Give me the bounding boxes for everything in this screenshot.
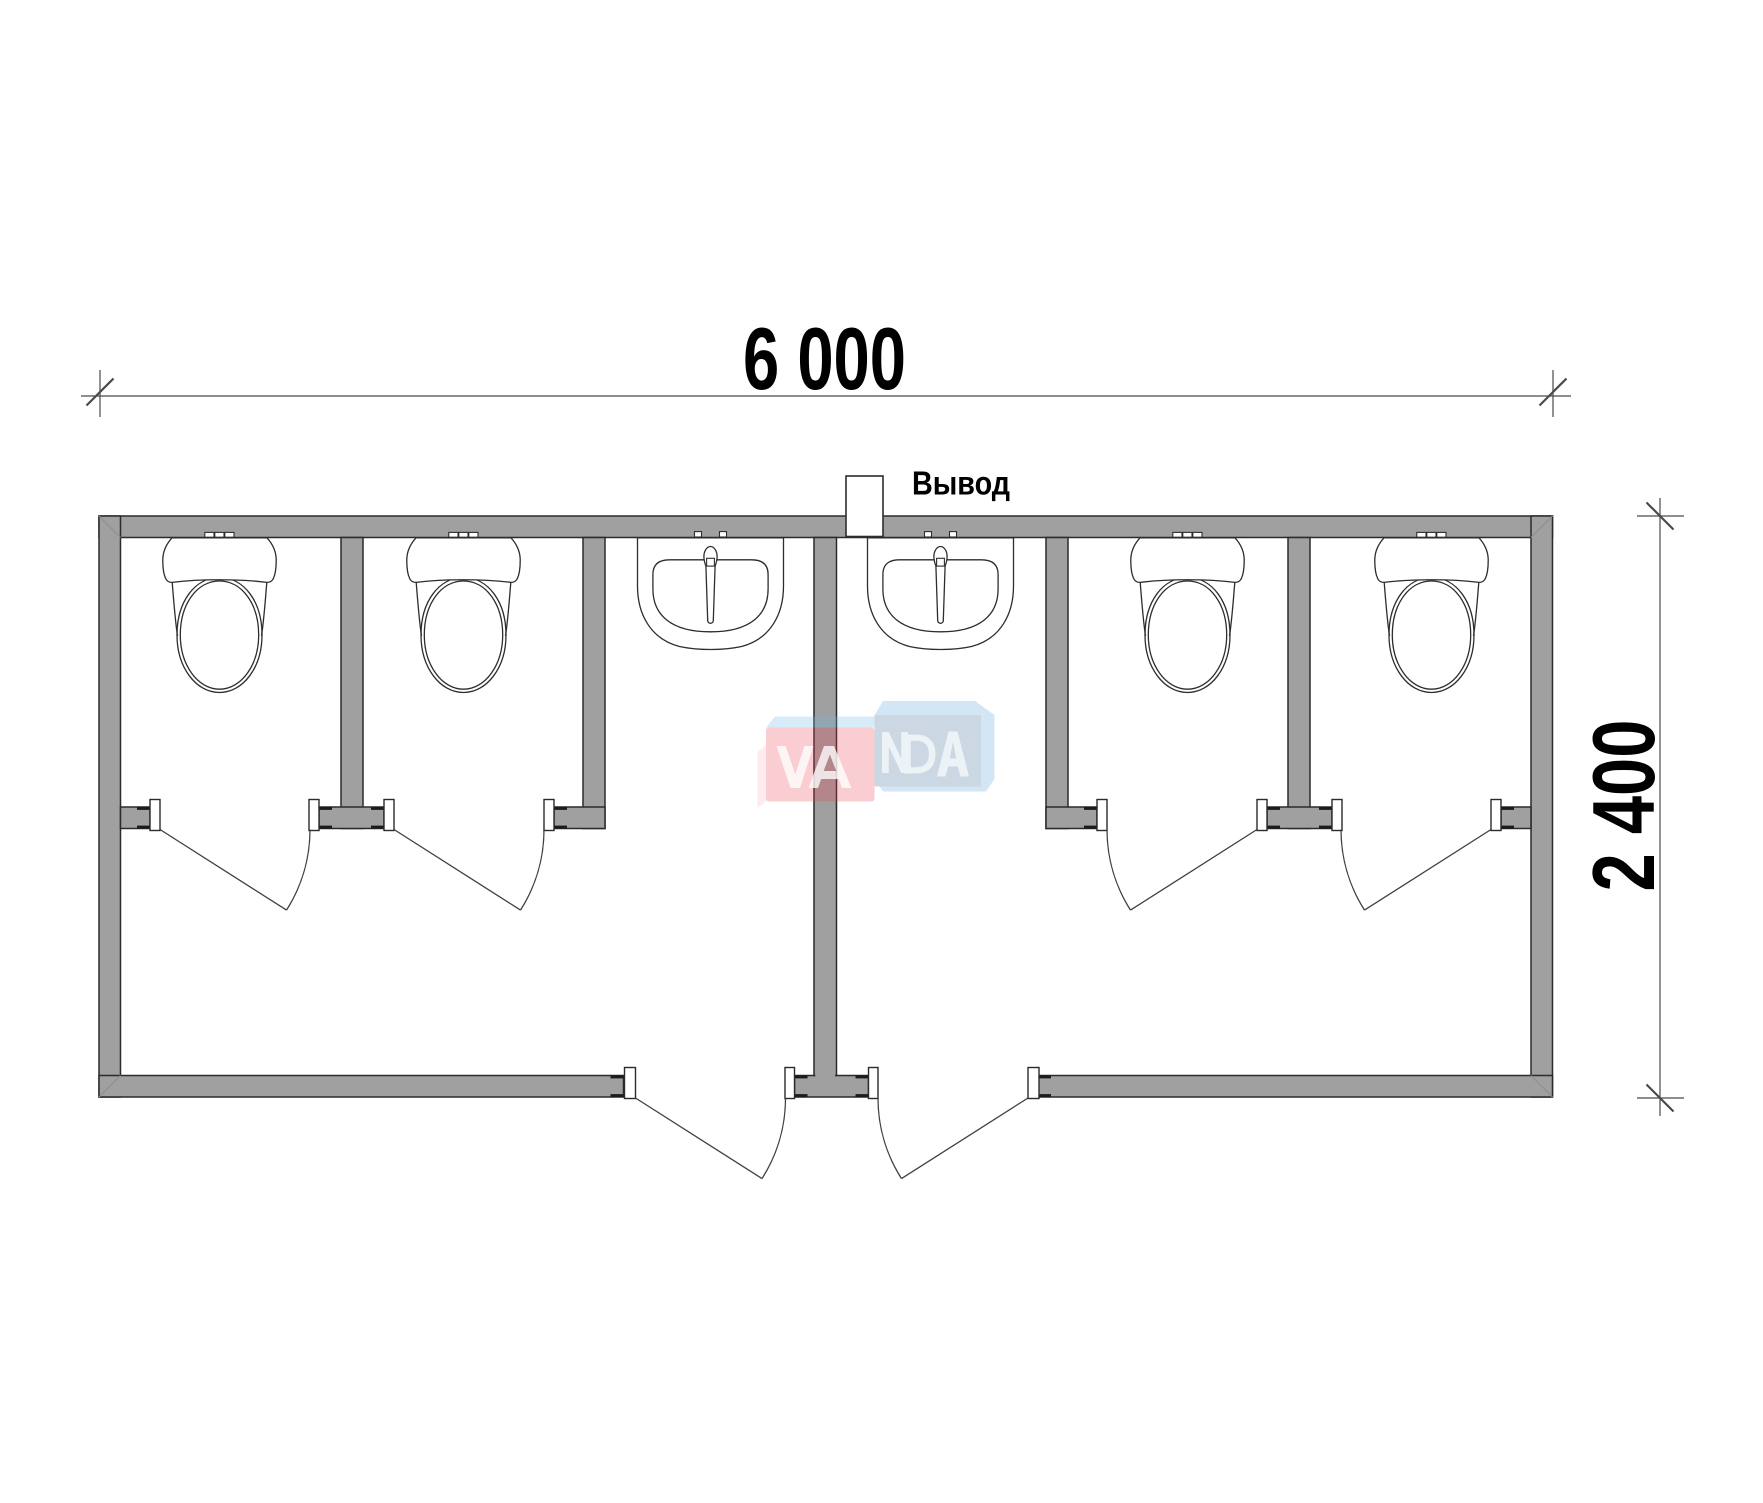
svg-text:Вывод: Вывод [912, 466, 1010, 503]
svg-text:6 000: 6 000 [743, 309, 906, 408]
svg-text:2 400: 2 400 [1574, 720, 1673, 892]
